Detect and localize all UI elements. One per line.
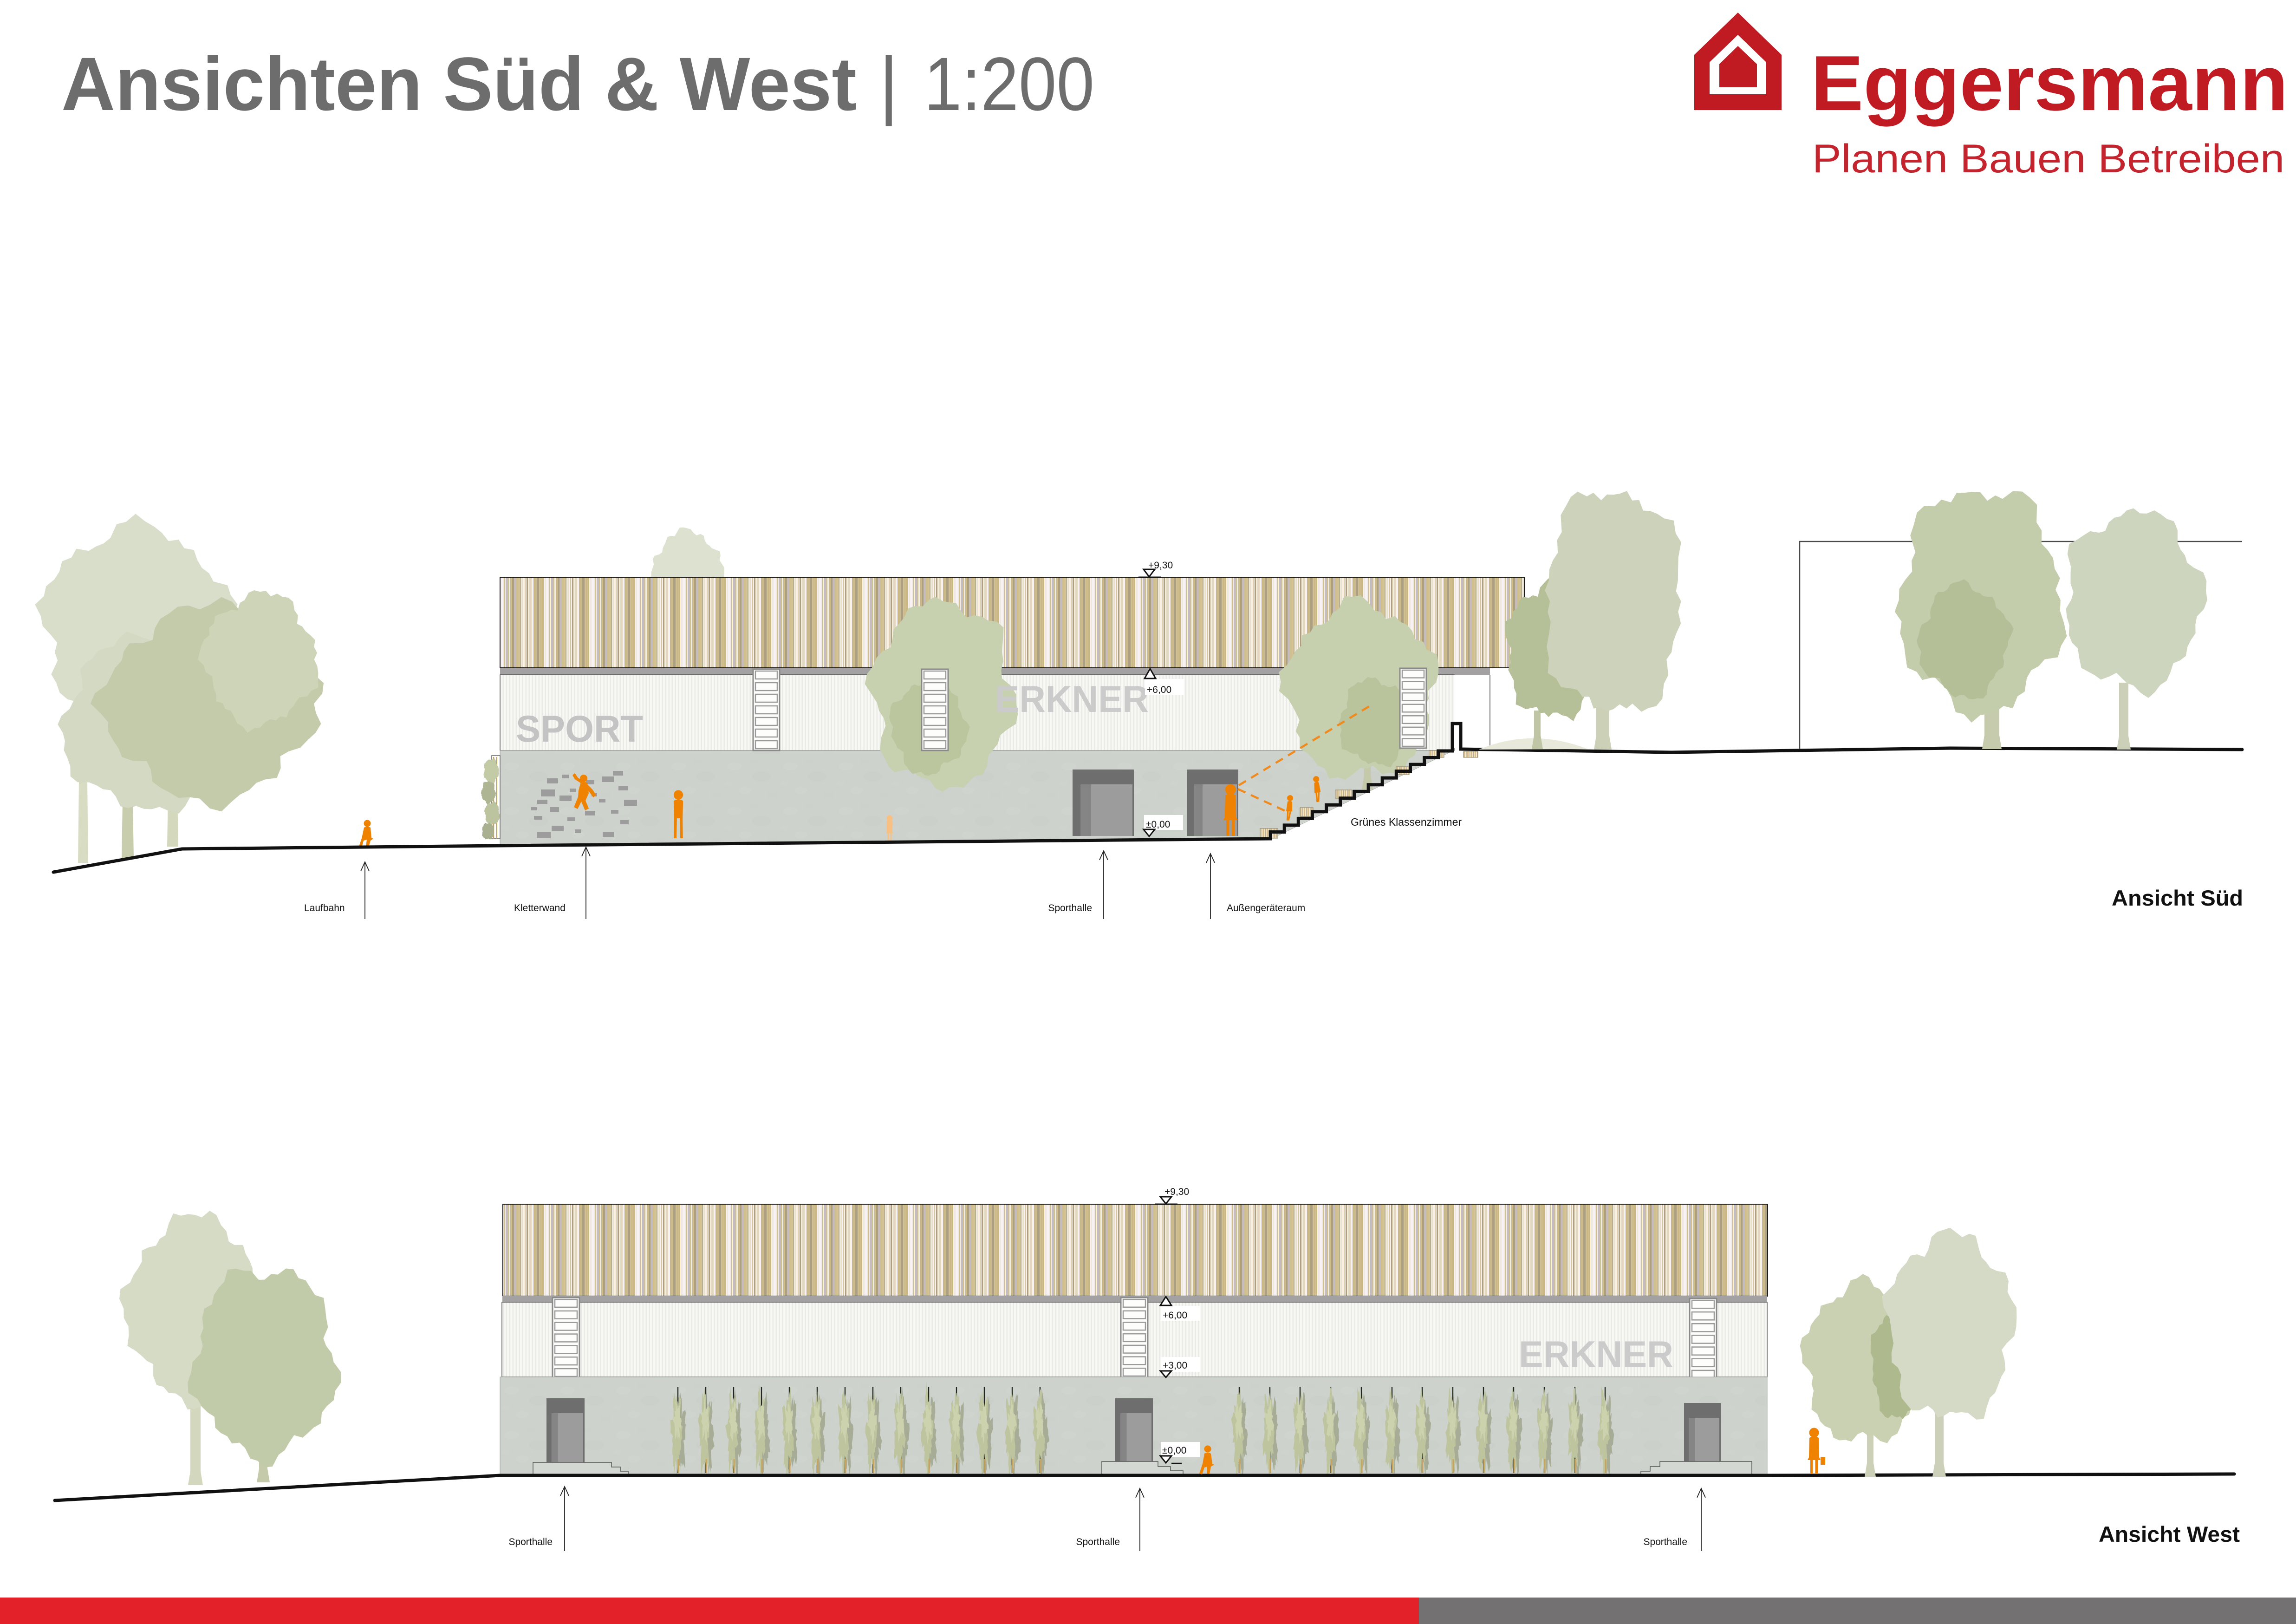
svg-text:+3,00: +3,00 [1163, 1360, 1187, 1371]
svg-text:Grünes Klassenzimmer: Grünes Klassenzimmer [1351, 816, 1462, 828]
svg-text:Sporthalle: Sporthalle [1048, 903, 1092, 913]
svg-text:Laufbahn: Laufbahn [304, 903, 345, 913]
svg-text:Ansichten Süd & West: Ansichten Süd & West [61, 41, 857, 126]
svg-text:Eggersmann: Eggersmann [1811, 39, 2288, 127]
svg-text:Planen Bauen Betreiben: Planen Bauen Betreiben [1812, 137, 2284, 181]
svg-text:±0,00: ±0,00 [1146, 819, 1170, 830]
svg-text:Ansicht West: Ansicht West [2099, 1522, 2240, 1546]
svg-text:1:200: 1:200 [924, 41, 1094, 126]
svg-text:Sporthalle: Sporthalle [508, 1537, 553, 1547]
svg-text:Kletterwand: Kletterwand [514, 903, 566, 913]
svg-text:±0,00: ±0,00 [1162, 1445, 1186, 1456]
svg-text:SPORT: SPORT [516, 708, 643, 750]
svg-text:Sporthalle: Sporthalle [1076, 1537, 1120, 1547]
svg-text:+6,00: +6,00 [1147, 685, 1171, 695]
svg-text:|: | [879, 41, 898, 126]
svg-text:ERKNER: ERKNER [995, 678, 1149, 720]
svg-text:+6,00: +6,00 [1163, 1310, 1187, 1321]
svg-text:+9,30: +9,30 [1164, 1187, 1189, 1197]
svg-text:Außengeräteraum: Außengeräteraum [1227, 903, 1305, 913]
svg-text:Ansicht Süd: Ansicht Süd [2112, 886, 2243, 910]
svg-text:ERKNER: ERKNER [1519, 1334, 1673, 1376]
svg-text:Sporthalle: Sporthalle [1643, 1537, 1687, 1547]
